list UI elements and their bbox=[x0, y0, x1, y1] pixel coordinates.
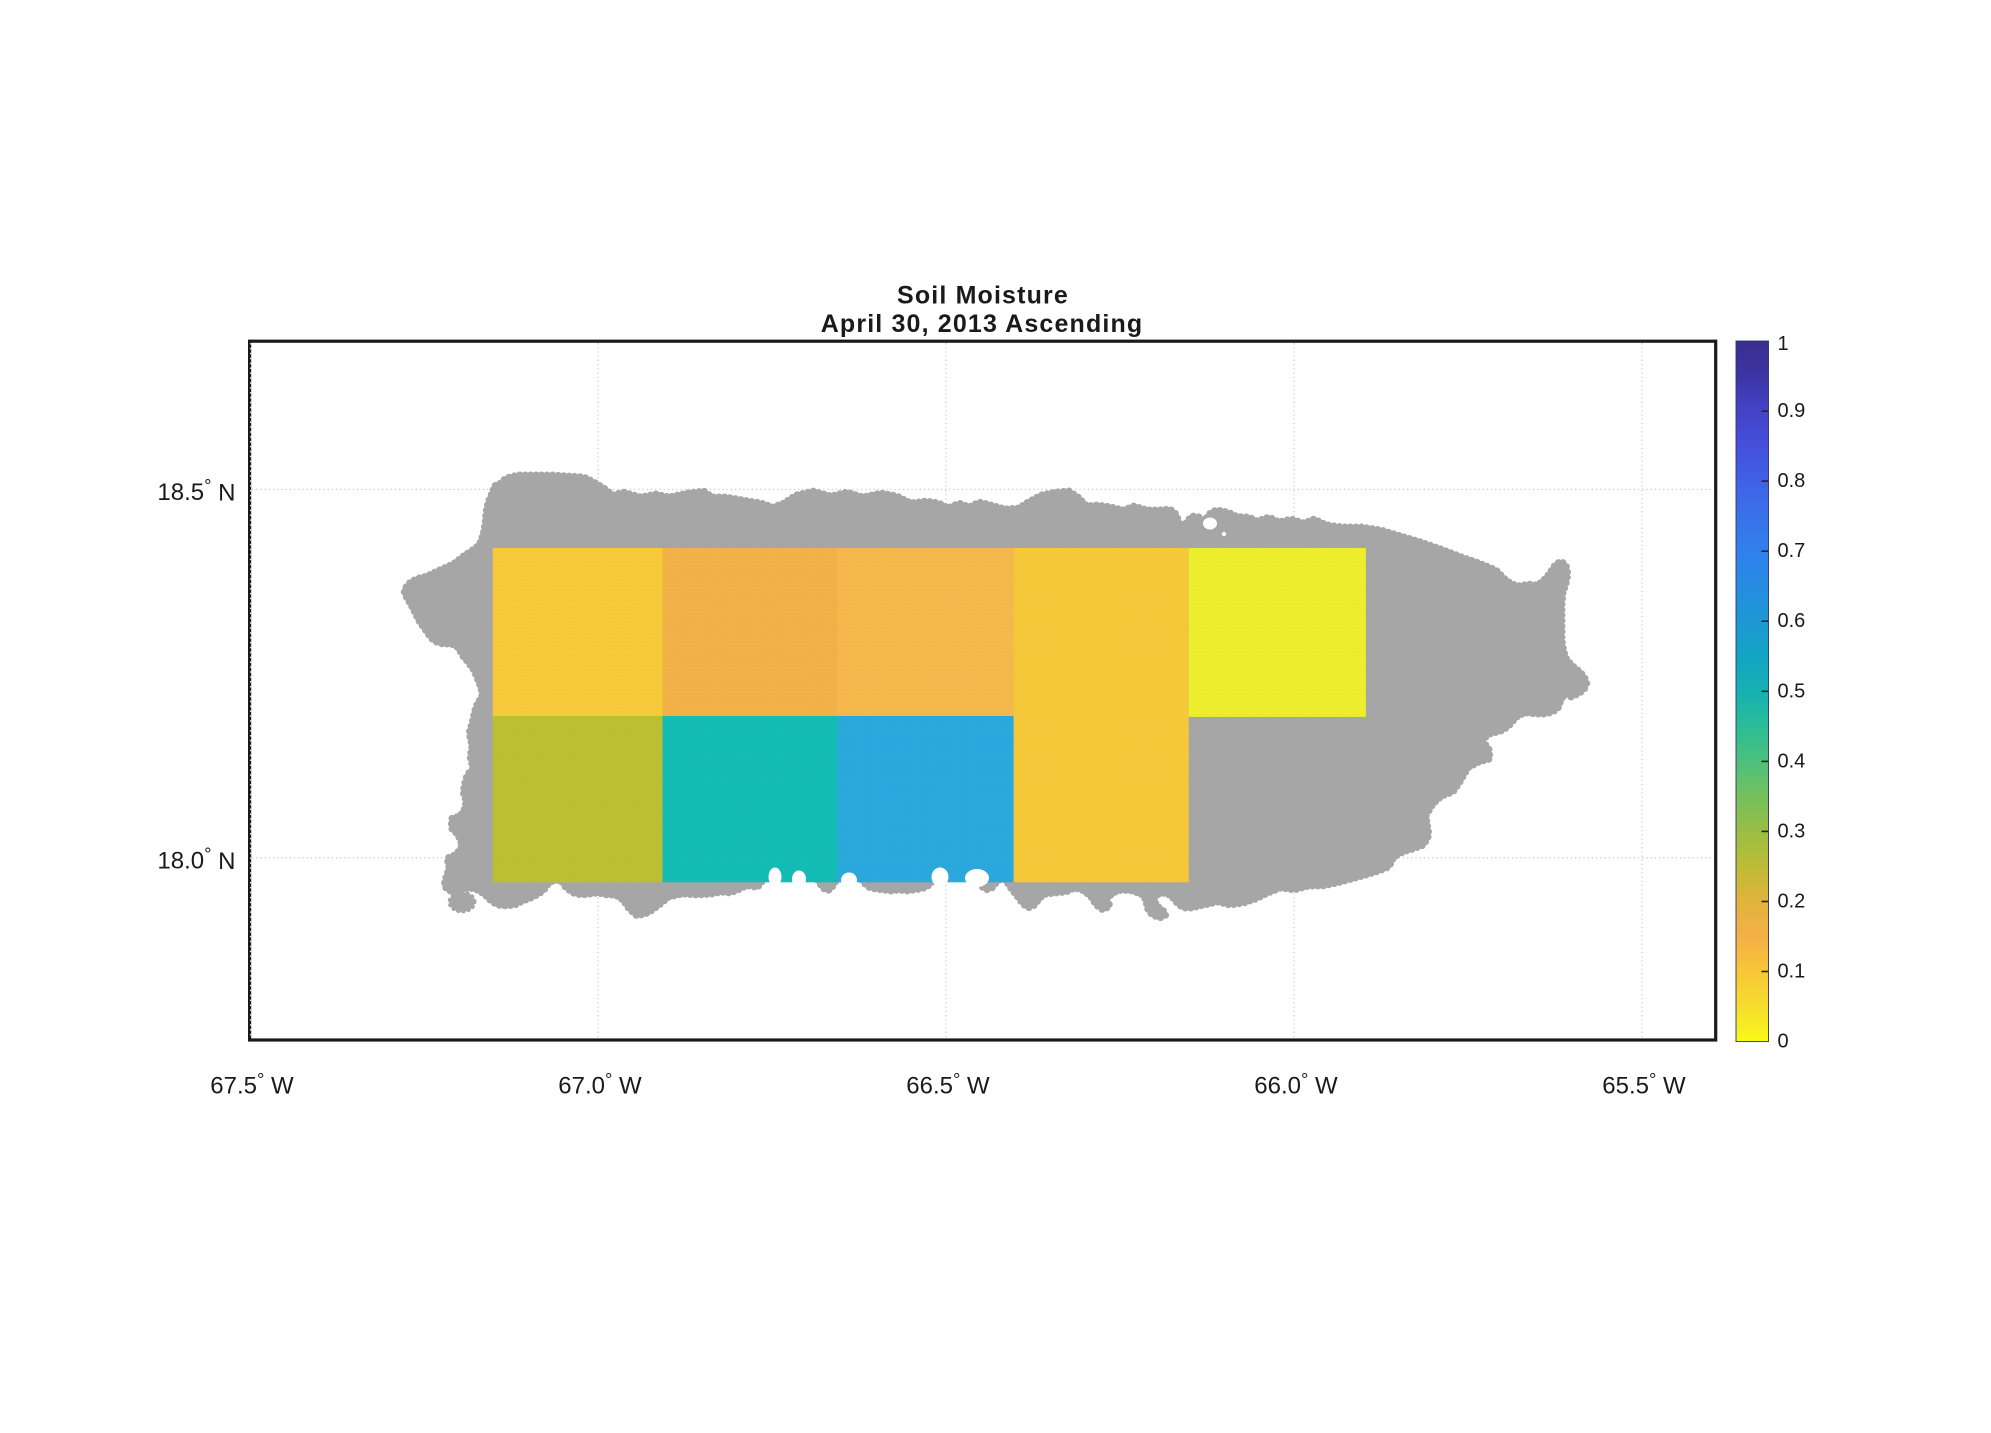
svg-text:18.0° N: 18.0° N bbox=[157, 843, 235, 875]
svg-text:0.5: 0.5 bbox=[1778, 680, 1806, 702]
svg-text:0.3: 0.3 bbox=[1778, 820, 1806, 842]
svg-text:Soil Moisture: Soil Moisture bbox=[897, 282, 1069, 310]
svg-text:18.5° N: 18.5° N bbox=[157, 475, 235, 507]
svg-text:0: 0 bbox=[1778, 1031, 1789, 1053]
svg-text:0.9: 0.9 bbox=[1778, 400, 1806, 422]
svg-text:1: 1 bbox=[1778, 333, 1789, 355]
svg-text:0.4: 0.4 bbox=[1778, 750, 1806, 772]
svg-text:67.5° W: 67.5° W bbox=[210, 1069, 294, 1100]
svg-text:0.7: 0.7 bbox=[1778, 540, 1806, 562]
svg-text:0.1: 0.1 bbox=[1778, 961, 1806, 983]
svg-text:0.6: 0.6 bbox=[1778, 610, 1806, 632]
svg-text:April 30, 2013 Ascending: April 30, 2013 Ascending bbox=[821, 310, 1144, 338]
svg-text:0.8: 0.8 bbox=[1778, 470, 1806, 492]
svg-text:0.2: 0.2 bbox=[1778, 891, 1806, 913]
svg-text:65.5° W: 65.5° W bbox=[1602, 1069, 1686, 1100]
svg-text:67.0° W: 67.0° W bbox=[558, 1069, 642, 1100]
svg-text:66.5° W: 66.5° W bbox=[906, 1069, 990, 1100]
svg-text:66.0° W: 66.0° W bbox=[1254, 1069, 1338, 1100]
